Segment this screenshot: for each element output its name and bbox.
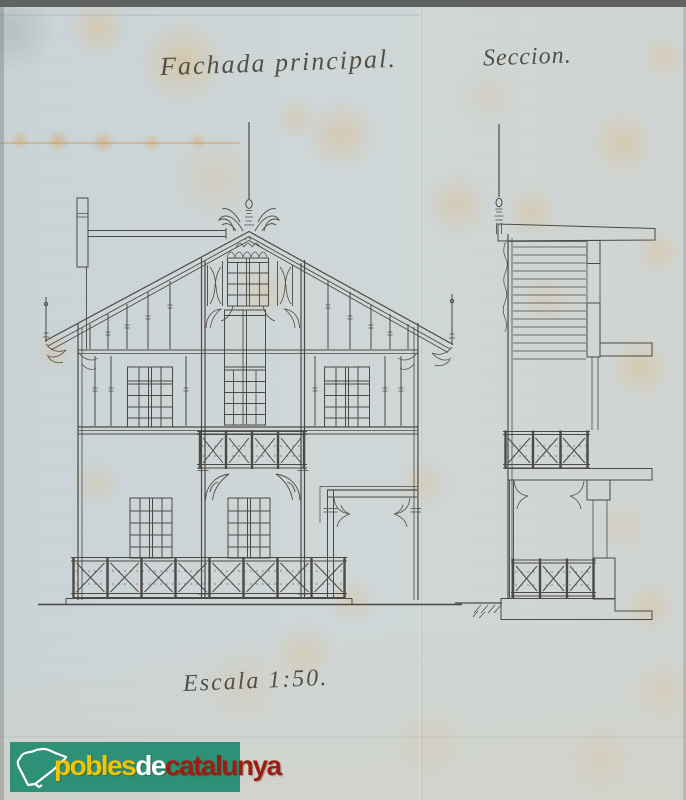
section-attic-siding — [513, 247, 586, 359]
apex-finial — [219, 122, 279, 231]
watermark-word-catalunya: catalunya — [165, 750, 281, 781]
ground-railing — [71, 557, 347, 599]
watermark-word-pobles: pobles — [54, 750, 135, 781]
porch — [320, 487, 421, 600]
section-drawing — [455, 124, 655, 620]
eave-spires — [43, 294, 455, 369]
facade-drawing — [38, 122, 462, 605]
section-front-wall — [503, 234, 512, 598]
chimney-post — [77, 198, 226, 349]
section-back-wall — [587, 241, 652, 600]
plinth — [66, 599, 352, 605]
pobles-de-catalunya-watermark: poblesdecatalunya — [10, 742, 240, 792]
watermark-text: poblesdecatalunya — [54, 750, 281, 782]
roof — [45, 232, 453, 353]
architectural-drawing — [0, 0, 686, 800]
veranda-columns — [198, 258, 309, 599]
ground-floor-windows — [130, 498, 270, 558]
upper-floor-windows — [128, 310, 370, 427]
section-roof-slab — [498, 224, 655, 242]
watermark-word-de: de — [135, 750, 165, 781]
section-spire — [495, 124, 504, 234]
balcony-railing — [197, 431, 307, 470]
section-balcony-railing — [503, 431, 590, 470]
scanned-drawing-sheet: Fachada principal. Seccion. Escala 1:50. — [0, 0, 686, 800]
section-ground-railing — [511, 559, 596, 600]
section-foundation — [455, 599, 652, 620]
first-floor-band — [78, 427, 418, 434]
gable — [206, 237, 300, 328]
